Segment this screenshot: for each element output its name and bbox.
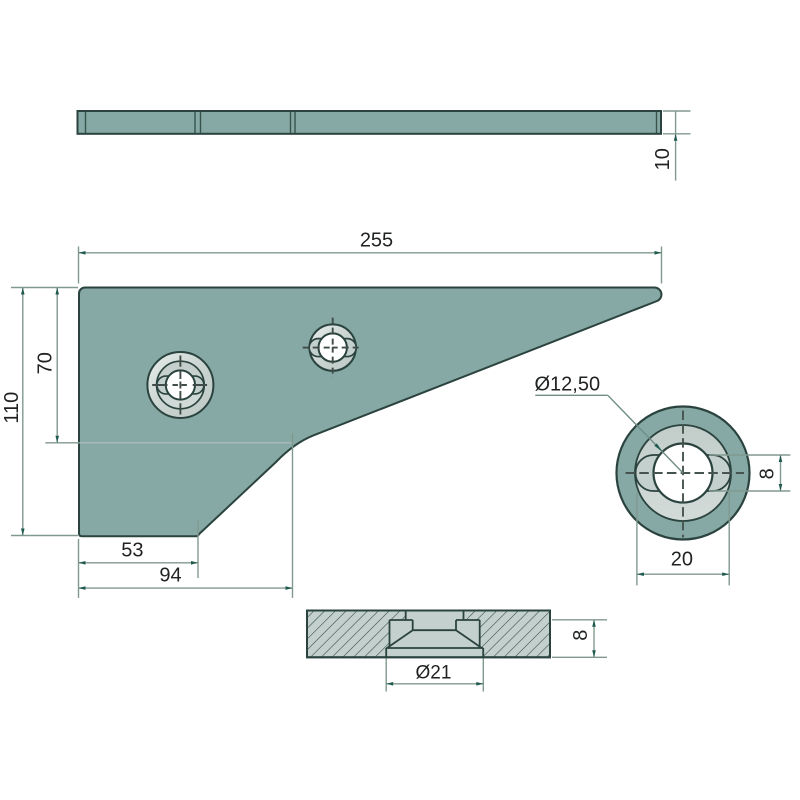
svg-text:Ø12,50: Ø12,50 <box>535 373 601 395</box>
svg-text:Ø21: Ø21 <box>416 663 452 684</box>
svg-text:94: 94 <box>159 564 181 586</box>
svg-text:53: 53 <box>121 539 143 561</box>
svg-text:110: 110 <box>1 392 23 424</box>
svg-text:8: 8 <box>570 630 592 641</box>
svg-text:255: 255 <box>360 229 393 251</box>
svg-text:70: 70 <box>34 352 56 374</box>
svg-text:8: 8 <box>756 468 778 479</box>
svg-text:20: 20 <box>671 548 693 570</box>
svg-text:10: 10 <box>652 148 674 170</box>
